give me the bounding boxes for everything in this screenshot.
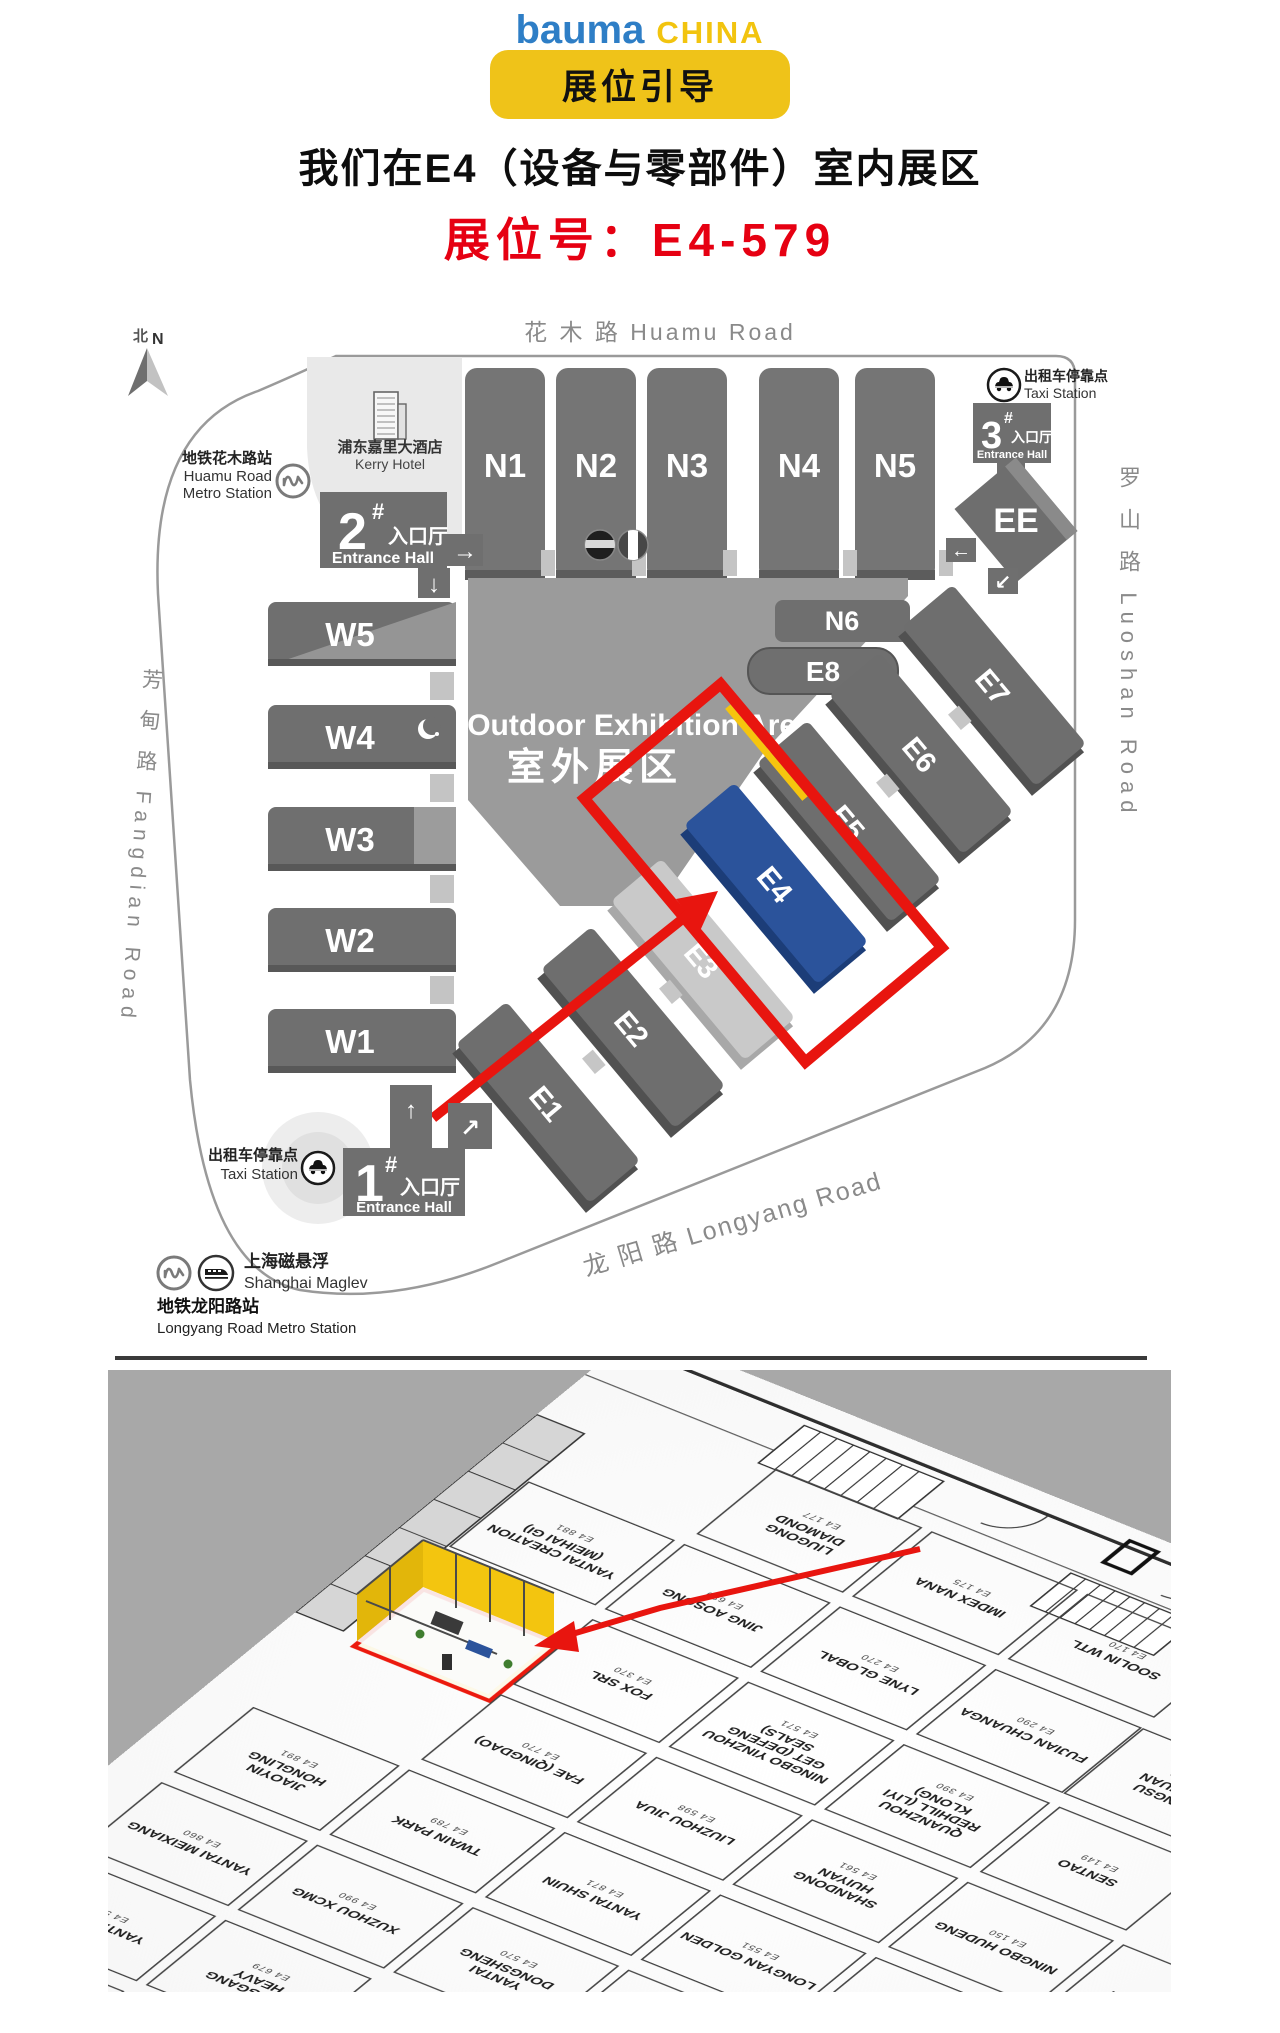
maglev-zh: 上海磁悬浮 bbox=[244, 1251, 329, 1271]
up-arrow-icon: ↑ bbox=[405, 1097, 417, 1124]
hall-n6-label: N6 bbox=[825, 606, 860, 636]
entrance2-en: Entrance Hall bbox=[332, 550, 434, 567]
hall-n2-label: N2 bbox=[575, 447, 617, 484]
road-luoshan: 罗 山 路 Luoshan Road bbox=[1112, 466, 1144, 819]
kerry-hotel-zh: 浦东嘉里大酒店 bbox=[337, 438, 442, 456]
svg-text:北: 北 bbox=[133, 328, 148, 345]
road-huamu: 花 木 路 Huamu Road bbox=[524, 319, 796, 345]
longyang-station-zh: 地铁龙阳路站 bbox=[157, 1296, 259, 1316]
hall-w1-label: W1 bbox=[325, 1023, 375, 1060]
maglev-train-icon bbox=[199, 1256, 233, 1290]
huamu-station-en2: Metro Station bbox=[183, 485, 272, 502]
n-halls: N1 N2 N3 N4 N5 bbox=[465, 368, 953, 580]
hall-ee-label: EE bbox=[993, 502, 1038, 540]
svg-text:N: N bbox=[152, 331, 164, 348]
taxi-top-zh: 出租车停靠点 bbox=[1024, 368, 1108, 384]
hall-n4-label: N4 bbox=[778, 447, 821, 484]
hall-n3-label: N3 bbox=[666, 447, 708, 484]
left-arrow-icon: ← bbox=[951, 540, 971, 562]
taxi-top-en: Taxi Station bbox=[1024, 385, 1096, 401]
hall-ee: EE ← ↙ bbox=[946, 458, 1077, 594]
entrance1-hash: # bbox=[385, 1152, 397, 1177]
huamu-station-zh: 地铁花木路站 bbox=[182, 449, 272, 467]
down-arrow-icon: ↓ bbox=[428, 571, 440, 598]
floorplan-panel: LIUGONG DIAMONDE4 177IMDEX NANAE4 175SOO… bbox=[108, 1370, 1171, 1992]
metro-icon-huamu bbox=[277, 465, 309, 497]
entrance1-en: Entrance Hall bbox=[356, 1199, 452, 1216]
road-longyang: 龙 阳 路 Longyang Road bbox=[580, 1167, 886, 1282]
w-halls: W5 W4 W3 W2 W1 bbox=[268, 602, 456, 1073]
entrance-hall-1: ↑ ↗ 1 # 入口厅 Entrance Hall bbox=[343, 1085, 492, 1216]
hall-n1-label: N1 bbox=[484, 447, 526, 484]
hall-w5-label: W5 bbox=[325, 616, 375, 653]
floorplan-plane: LIUGONG DIAMONDE4 177IMDEX NANAE4 175SOO… bbox=[108, 1370, 1171, 1992]
south-west-arrow-icon: ↙ bbox=[995, 572, 1012, 594]
hall-e8-label: E8 bbox=[806, 656, 840, 687]
kerry-hotel-en: Kerry Hotel bbox=[355, 456, 425, 472]
booth-name: YANTAI DONGSHENG bbox=[424, 1938, 578, 1992]
entrance3-zh: 入口厅 bbox=[1011, 429, 1053, 445]
metro-icon-longyang bbox=[158, 1257, 190, 1289]
hall-w2-label: W2 bbox=[325, 922, 375, 959]
site-map: 北 N 花 木 路 Huamu Road 浦东嘉里大酒店 Kerry Hotel… bbox=[0, 0, 1280, 1360]
entrance1-zh: 入口厅 bbox=[400, 1176, 460, 1199]
maglev-en: Shanghai Maglev bbox=[244, 1275, 368, 1292]
compass-north-icon: 北 N bbox=[128, 328, 168, 396]
longyang-station-en: Longyang Road Metro Station bbox=[157, 1320, 356, 1337]
taxi-icon-bottom bbox=[302, 1152, 334, 1184]
section-divider bbox=[115, 1356, 1147, 1360]
entrance3-hash: # bbox=[1004, 410, 1013, 427]
entrance3-en: Entrance Hall bbox=[977, 449, 1047, 461]
taxi-icon-top bbox=[988, 369, 1020, 401]
hall-w3-label: W3 bbox=[325, 821, 375, 858]
huamu-station-en1: Huamu Road bbox=[184, 468, 272, 485]
hall-n5-label: N5 bbox=[874, 447, 916, 484]
taxi-bottom-zh: 出租车停靠点 bbox=[208, 1146, 298, 1164]
north-east-arrow-icon: ↗ bbox=[460, 1115, 480, 1142]
right-arrow-icon: → bbox=[453, 538, 477, 565]
entrance2-zh: 入口厅 bbox=[388, 525, 448, 548]
entrance2-hash: # bbox=[372, 499, 384, 524]
taxi-bottom-en: Taxi Station bbox=[220, 1166, 298, 1183]
hall-w4-label: W4 bbox=[325, 719, 375, 756]
